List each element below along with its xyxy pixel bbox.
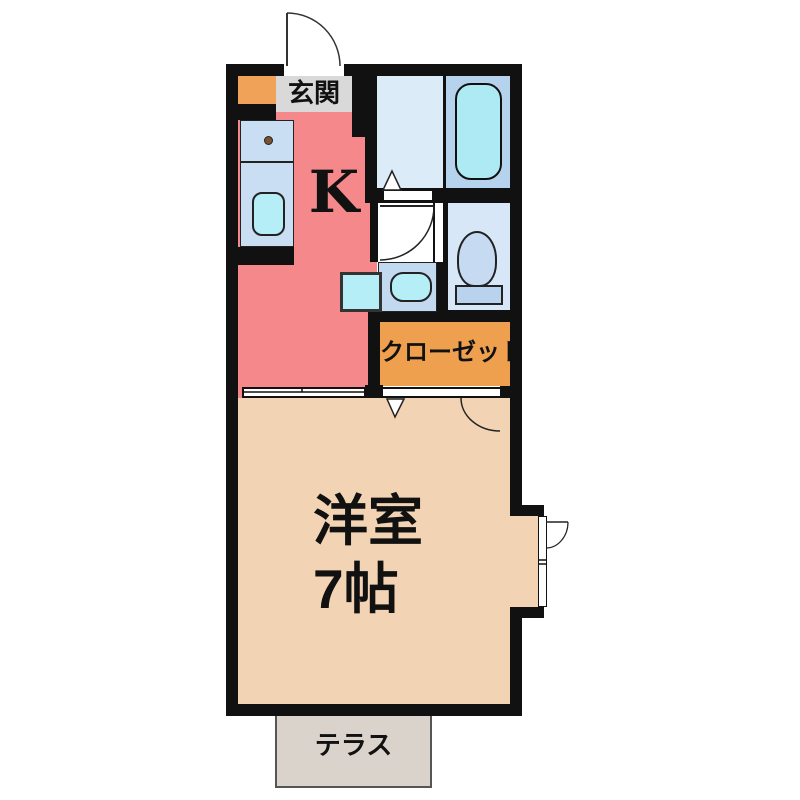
washbasin-sink: [390, 272, 432, 302]
wall-left: [226, 64, 238, 716]
wall-washroom-toilet: [443, 203, 448, 262]
entrance-door: [287, 13, 340, 66]
wall-genkan-right: [352, 64, 377, 137]
toilet-tank: [455, 285, 503, 305]
kitchen-label: K: [294, 163, 374, 221]
terrace-label: テラス: [275, 732, 432, 758]
wall-under-counter: [238, 247, 294, 265]
washing-machine-pan: [340, 272, 382, 312]
wall-bottom: [226, 704, 522, 716]
bay-window-strip: [538, 516, 547, 607]
wall-bay-stub-bottom: [510, 607, 544, 618]
entrance-threshold: [282, 64, 346, 76]
closet-label: クローゼット: [380, 341, 510, 365]
genkan-tile: [238, 76, 276, 104]
main-room-label-line2: 7帖: [313, 562, 399, 617]
bay-door: [546, 522, 568, 548]
wall-basin-toilet: [437, 262, 448, 312]
washroom-toilet-threshold: [433, 203, 443, 262]
main-room-label-line1: 洋室: [313, 494, 423, 549]
bay-floor: [500, 516, 538, 607]
sliding-door: [242, 387, 366, 398]
kitchen-sink: [252, 192, 285, 236]
wall-right-lower: [510, 607, 522, 716]
wall-room-top-mid: [365, 385, 383, 398]
counter-divider: [240, 161, 294, 163]
genkan-label: 玄関: [276, 80, 352, 106]
toilet-bowl: [457, 231, 497, 287]
bathtub: [455, 83, 502, 180]
wall-right-upper: [510, 64, 522, 516]
wall-closet-bottom-right: [500, 386, 522, 398]
wall-bay-stub-top: [510, 505, 544, 516]
bath-threshold: [382, 189, 434, 202]
wall-under-genkan-tile: [238, 104, 276, 120]
closet-door-strip: [383, 387, 500, 398]
floorplan-canvas: 玄関 K クローゼット 洋室 7帖 テラス: [0, 0, 800, 800]
burner-dot: [264, 136, 273, 145]
bath-floor: [377, 76, 445, 188]
